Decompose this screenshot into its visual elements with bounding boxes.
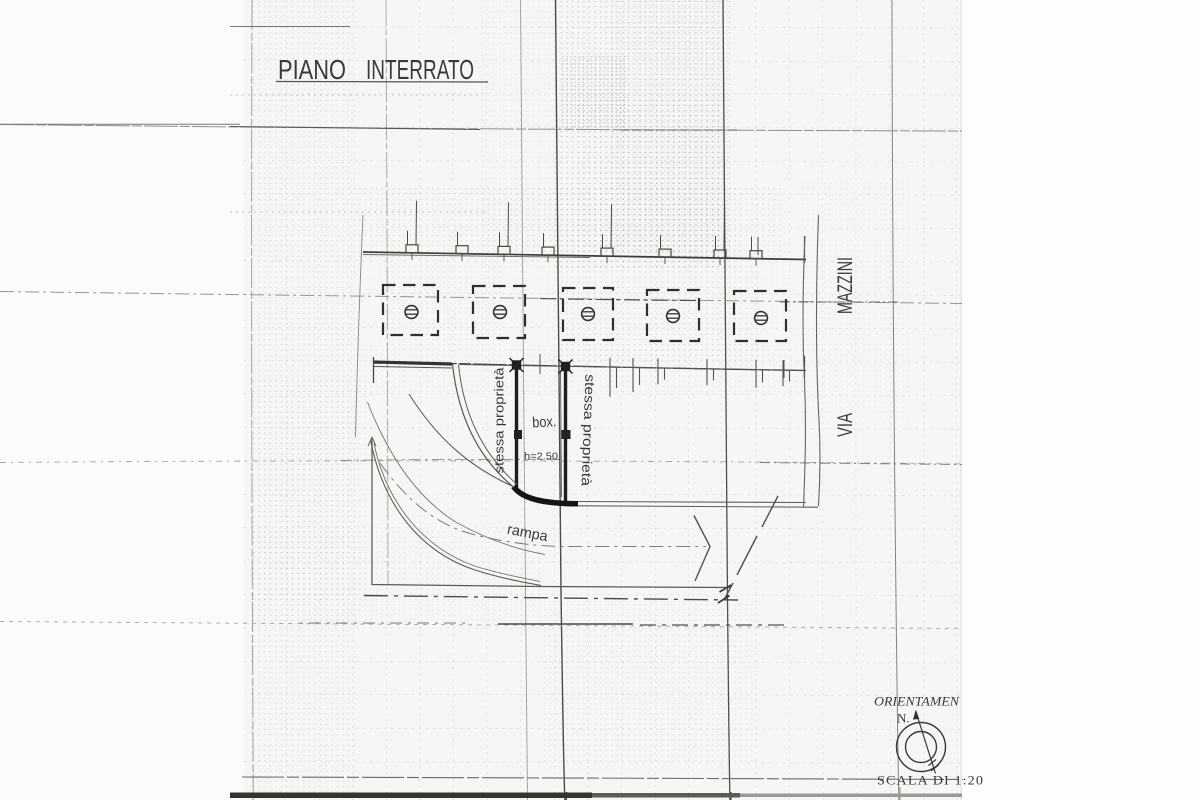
svg-text:VIA: VIA [834, 413, 857, 437]
svg-text:ORIENTAMEN: ORIENTAMEN [874, 695, 960, 709]
svg-text:SCALA DI 1:20: SCALA DI 1:20 [877, 773, 984, 788]
svg-text:box.: box. [532, 413, 557, 431]
svg-text:INTERRATO: INTERRATO [366, 54, 474, 85]
svg-text:MAZZINI: MAZZINI [834, 257, 857, 314]
svg-text:PIANO: PIANO [278, 54, 346, 85]
svg-text:N.: N. [897, 711, 910, 726]
svg-text:stessa proprietà: stessa proprietà [492, 366, 507, 473]
svg-text:h=2.50.: h=2.50. [524, 451, 561, 463]
